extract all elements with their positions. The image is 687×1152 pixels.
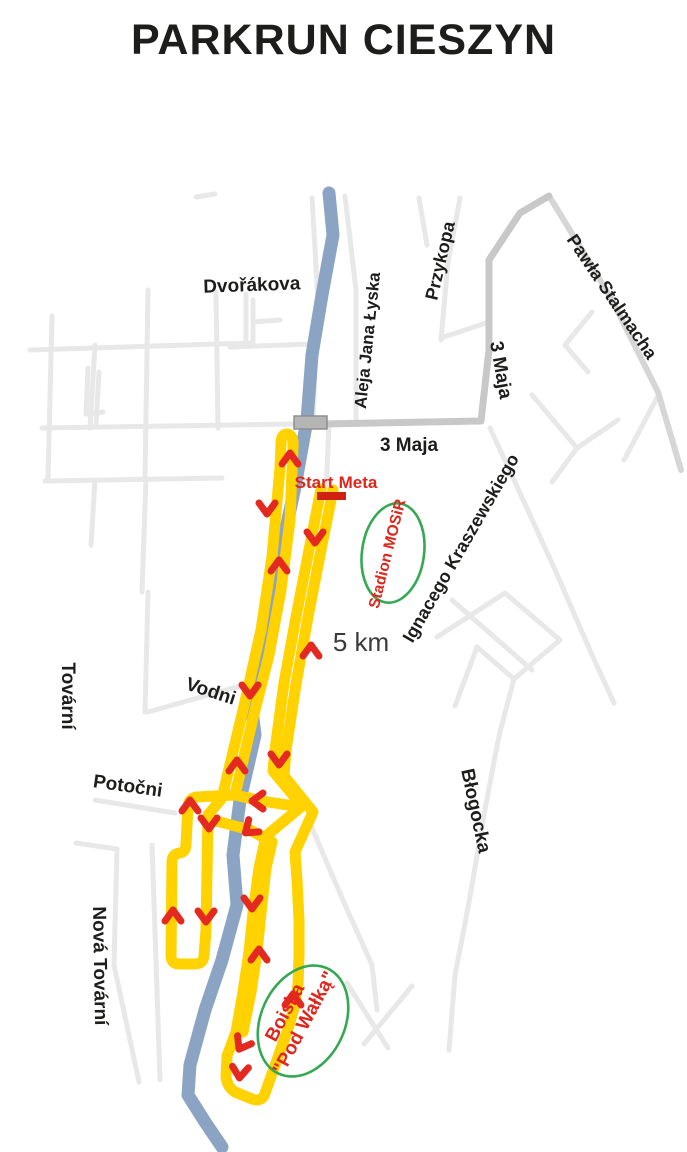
distance-label: 5 km [333,627,389,657]
street-label-ignacego-kraszewskiego: Ignacego Kraszewskiego [399,450,523,645]
finish-label: Meta [339,473,378,492]
stadium-label: Stadion MOSiR [366,498,410,611]
course-map: Dvořákova Aleja Jana Łyska Przykopa Pawł… [0,0,687,1152]
street-label-nova-tovarni: Nová Tovární [88,906,111,1026]
parkrun-map-page: PARKRUN CIESZYN [0,0,687,1152]
street-label-pawla-stalmacha: Pawła Stalmacha [563,231,662,364]
start-label: Start [295,473,334,492]
street-label-potocni: Potočni [92,771,164,801]
route-arrow-icon [232,1066,249,1078]
street-label-vodni: Vodni [183,674,238,710]
start-finish-bar [317,492,346,500]
street-label-3-maja-lower: 3 Maja [380,435,439,456]
street-label-tovarni: Tovární [57,662,78,730]
bridge [294,416,327,429]
street-label-dvorakova: Dvořákova [203,273,301,297]
